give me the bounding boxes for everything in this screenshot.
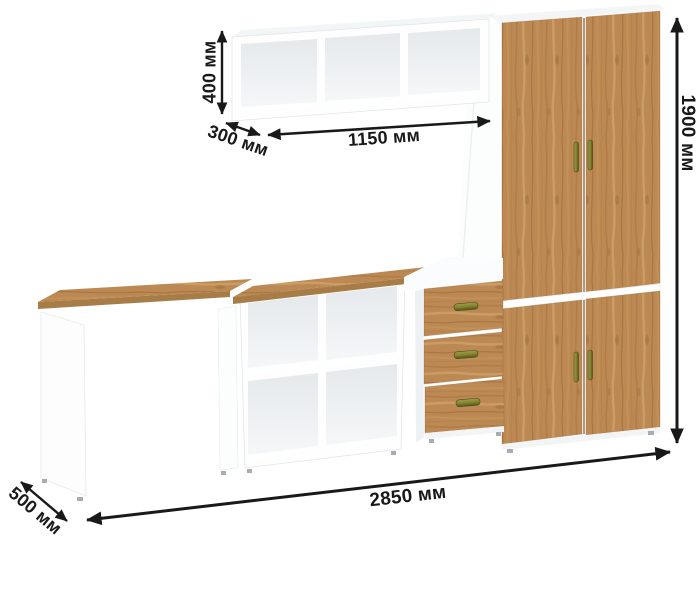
- wardrobe-upper-handle-left: [574, 142, 579, 172]
- furniture-product-image: 400 мм 300 мм 1150 мм 1900 мм 2850 мм 50…: [0, 0, 700, 606]
- wardrobe: [486, 4, 666, 453]
- cube-shelf-foot-right: [391, 451, 396, 455]
- desk-middle-foot: [221, 471, 226, 475]
- wall-shelf-cell-1: [241, 39, 317, 112]
- cube-shelf-unit: [240, 277, 405, 473]
- wall-shelf-cell-3: [408, 28, 480, 100]
- wardrobe-upper-door-right: [586, 11, 660, 292]
- wardrobe-foot-right: [648, 431, 654, 435]
- dimension-label-shelf-height: 400 мм: [200, 41, 221, 104]
- desk-middle-leg: [218, 306, 238, 470]
- wardrobe-lower-handle-right: [588, 350, 593, 380]
- cube-shelf-cell-2: [326, 286, 397, 365]
- cube-shelf-cell-3: [248, 373, 318, 460]
- wall-shelf: [232, 13, 497, 121]
- drawer-unit-foot-right: [496, 432, 501, 436]
- cube-shelf-cell-4: [326, 364, 397, 450]
- wardrobe-lower-handle-left: [574, 352, 579, 382]
- dimension-label-cabinet-height: 1900 мм: [676, 94, 698, 171]
- furniture-render: [0, 0, 700, 606]
- cube-shelf-foot-left: [247, 469, 252, 473]
- wardrobe-lower-door-left: [502, 300, 582, 444]
- wardrobe-upper-handle-right: [588, 140, 593, 170]
- wardrobe-lower-door-right: [586, 291, 660, 435]
- drawer-unit-left-side: [415, 289, 424, 443]
- drawer-unit: [404, 257, 504, 443]
- wardrobe-upper-door-left: [502, 17, 582, 301]
- desk-foot-right: [77, 497, 83, 501]
- desk-left-leg: [41, 312, 86, 496]
- wall-shelf-cell-2: [325, 33, 400, 106]
- drawer-unit-foot-left: [429, 439, 434, 443]
- wardrobe-foot-left: [507, 449, 513, 453]
- desk-foot-left: [42, 479, 47, 483]
